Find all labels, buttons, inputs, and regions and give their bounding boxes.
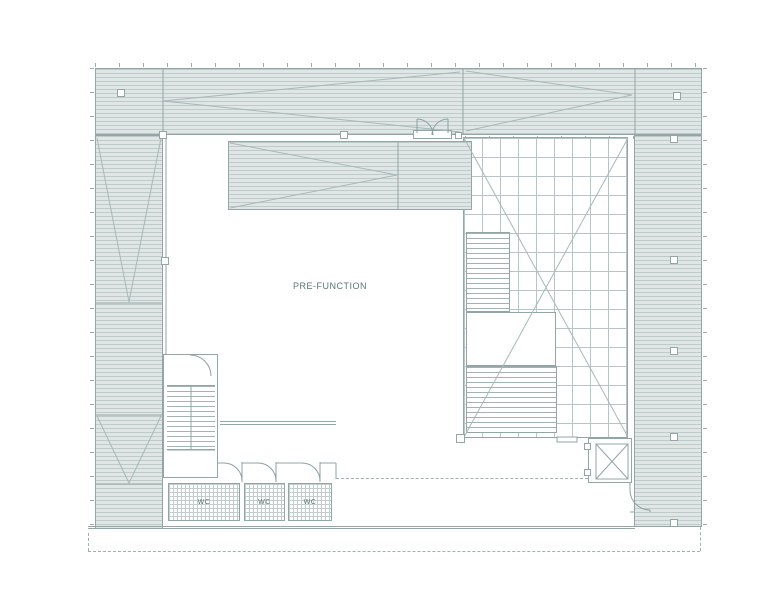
central-stair-lower-run xyxy=(466,366,557,433)
column xyxy=(670,519,678,527)
column xyxy=(161,257,169,265)
tick-marks-top xyxy=(95,63,702,67)
dashed-line-interior xyxy=(336,478,588,479)
dashed-line-bottom-left xyxy=(88,533,89,551)
wc-room-1: WC xyxy=(168,483,240,521)
wc-3-label: WC xyxy=(304,499,317,506)
central-stair-landing xyxy=(466,312,556,366)
column xyxy=(673,92,681,100)
elevator-shaft xyxy=(588,438,632,483)
dashed-line-bottom-right xyxy=(700,527,701,551)
column xyxy=(455,132,462,139)
column xyxy=(670,433,678,441)
wc-1-label: WC xyxy=(198,499,211,506)
column xyxy=(340,131,348,139)
column xyxy=(670,347,678,355)
column xyxy=(670,135,678,143)
column xyxy=(670,256,678,264)
partition-wall xyxy=(220,421,336,425)
column xyxy=(159,131,167,139)
tick-marks-right xyxy=(703,68,707,527)
building-south-edge xyxy=(88,526,635,529)
roof-band-left xyxy=(95,135,163,529)
wc-2-label: WC xyxy=(258,499,271,506)
dashed-line-bottom xyxy=(88,551,700,552)
roof-band-right xyxy=(634,135,702,527)
wc-wall-stubs xyxy=(218,463,336,479)
left-stair-treads xyxy=(167,385,215,450)
wc-room-2: WC xyxy=(244,483,285,521)
tick-marks-left xyxy=(90,68,94,529)
central-stair-upper-run xyxy=(466,232,510,312)
prefunction-label: PRE-FUNCTION xyxy=(255,281,405,291)
entry-door-threshold xyxy=(413,130,452,139)
shaft-notch xyxy=(584,443,591,450)
column xyxy=(456,434,465,443)
floor-plan: WC WC WC xyxy=(0,0,768,615)
shaft-notch xyxy=(584,469,591,476)
column xyxy=(117,89,125,97)
wc-room-3: WC xyxy=(288,483,332,521)
roof-band-top xyxy=(95,68,702,135)
canopy-strip xyxy=(228,141,472,210)
